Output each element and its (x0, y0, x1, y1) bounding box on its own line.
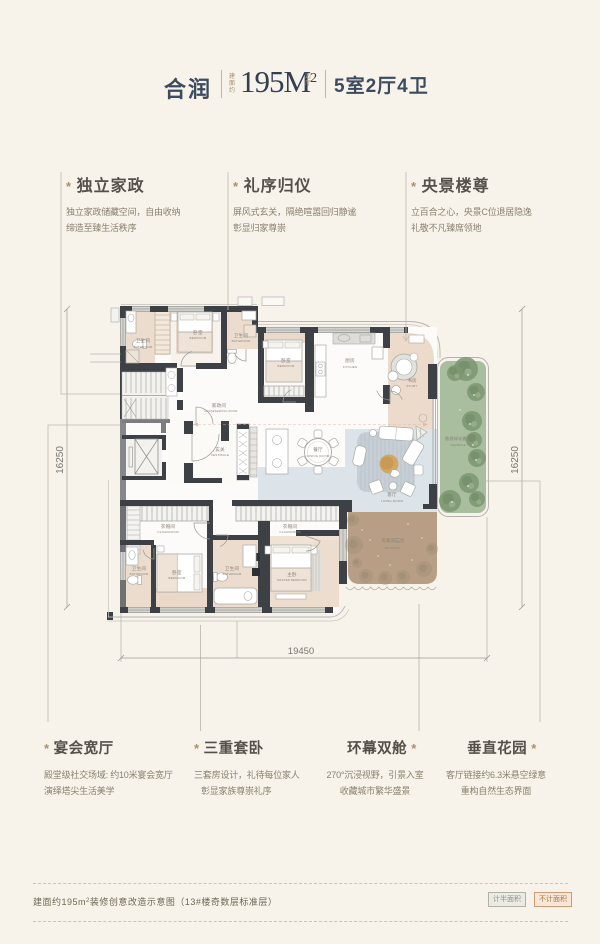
svg-text:BATHROOM: BATHROOM (232, 339, 251, 343)
svg-text:CLOAKROOM: CLOAKROOM (279, 530, 301, 534)
svg-text:BATHROOM: BATHROOM (134, 345, 153, 349)
svg-text:CLOAKROOM: CLOAKROOM (157, 530, 179, 534)
svg-text:TERRACE: TERRACE (450, 443, 466, 447)
svg-text:16250: 16250 (510, 446, 521, 474)
svg-text:BATHROOM: BATHROOM (130, 572, 149, 576)
svg-text:KITCHEN: KITCHEN (343, 365, 358, 369)
svg-text:卧室: 卧室 (193, 329, 203, 336)
svg-text:MASTER BEDROOM: MASTER BEDROOM (277, 578, 307, 582)
svg-text:BEDROOM: BEDROOM (278, 364, 295, 368)
svg-text:卫生间: 卫生间 (225, 565, 240, 572)
svg-text:卧室: 卧室 (172, 569, 182, 576)
svg-text:衣帽间: 衣帽间 (283, 523, 298, 530)
svg-text:HOUSEKEEPING ROOM: HOUSEKEEPING ROOM (205, 409, 238, 413)
svg-text:BEDROOM: BEDROOM (169, 576, 186, 580)
svg-text:卫生间: 卫生间 (132, 565, 147, 572)
svg-text:家政间: 家政间 (212, 402, 227, 409)
svg-text:书房: 书房 (407, 377, 417, 384)
svg-text:DINING ROOM: DINING ROOM (307, 454, 330, 458)
svg-text:衣帽间: 衣帽间 (161, 523, 176, 530)
svg-text:玄关: 玄关 (215, 446, 225, 453)
svg-text:卫生间: 卫生间 (234, 332, 249, 339)
svg-text:LIVING ROOM: LIVING ROOM (381, 499, 404, 503)
svg-text:STUDY: STUDY (406, 384, 417, 388)
svg-text:餐厅: 餐厅 (313, 446, 323, 453)
svg-text:厨房: 厨房 (345, 357, 355, 364)
svg-text:客厅: 客厅 (387, 491, 397, 498)
svg-text:VESTIBULE: VESTIBULE (211, 453, 229, 457)
svg-text:有氧双露台: 有氧双露台 (382, 537, 405, 544)
svg-text:BATHROOM: BATHROOM (223, 572, 242, 576)
svg-text:悬挑绿化露台: 悬挑绿化露台 (445, 435, 471, 442)
svg-text:19450: 19450 (288, 646, 314, 657)
svg-text:主卧: 主卧 (287, 571, 297, 578)
svg-text:卫生间: 卫生间 (136, 337, 151, 344)
svg-text:16250: 16250 (55, 446, 66, 474)
svg-text:TERRACE: TERRACE (384, 546, 400, 550)
svg-text:BEDROOM: BEDROOM (190, 336, 207, 340)
svg-text:卧室: 卧室 (281, 357, 291, 364)
